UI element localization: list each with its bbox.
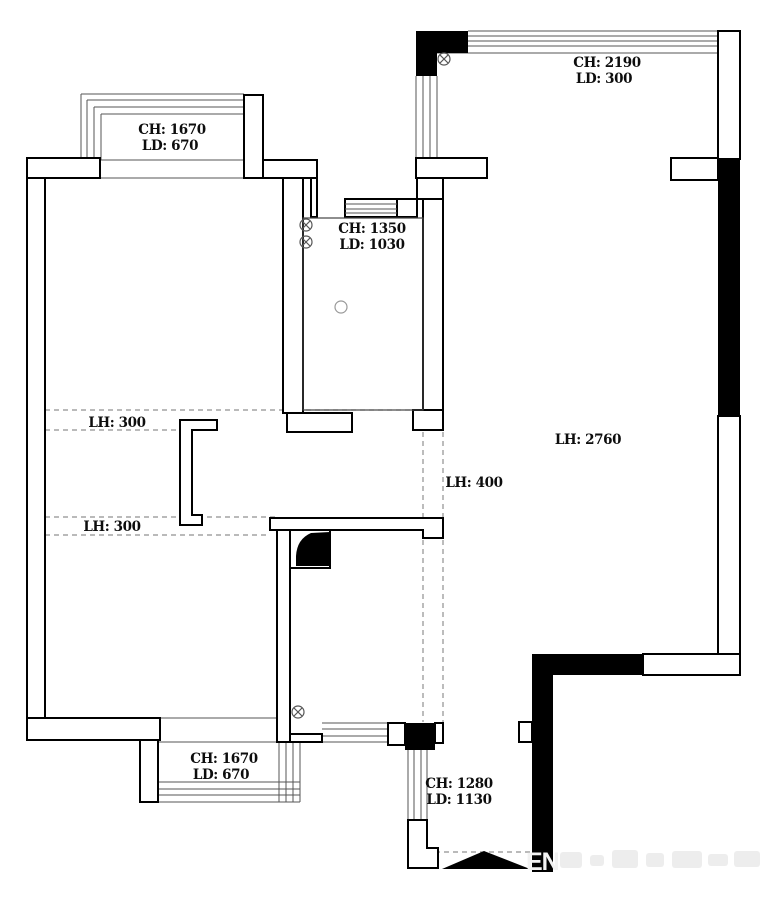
window-top-right [437,31,718,53]
label-ch: CH: 1670 [138,122,206,138]
label-bath-top: CH: 1350 LD: 1030 [338,221,406,253]
black-wall-bottom-L [532,654,643,872]
wall-entry-flank-left [388,723,405,745]
wall-balcony-bar [416,158,487,178]
watermark-blob [612,850,638,868]
watermark-blob [646,853,664,867]
label-ch: CH: 2190 [573,55,641,71]
label-ch: CH: 1350 [338,221,406,237]
wall-bedroom2-bottom [27,718,160,740]
label-living-height: LH: 2760 [555,432,621,448]
window-bottom-middle [322,723,390,742]
floor-plan-svg: CH: 1670 LD: 670 CH: 2190 LD: 300 CH: 13… [0,0,765,900]
wall-bath-right [423,199,443,410]
window-entry-side [408,750,427,820]
black-wall-entry-block [405,723,435,750]
wall-closet-bracket [180,420,217,525]
watermark-faint-blobs [560,850,760,868]
label-ld: LD: 300 [576,71,632,87]
shower-symbol [290,530,330,568]
wall-living-bottom [643,654,740,675]
label-ld: LD: 670 [193,767,249,783]
plain-circle-icon [335,301,347,313]
wall-bay-pillar [244,95,263,178]
label-ld: LD: 1130 [426,792,491,808]
wall-bedroom1-right [283,178,303,413]
label-ch: CH: 1670 [190,751,258,767]
balcony-side-window [416,76,437,158]
label-window-top-right: CH: 2190 LD: 300 [573,55,641,87]
wall-entry-flank-right [435,723,443,743]
wall-right-lower [718,416,740,675]
wall-top-left [27,158,100,178]
wall-left-exterior [27,158,45,740]
floor-plan-page: CH: 1670 LD: 670 CH: 2190 LD: 300 CH: 13… [0,0,765,900]
label-ld: LD: 670 [142,138,198,154]
label-beam-center: LH: 400 [445,475,502,491]
black-wall-right [718,159,740,416]
circle-cross-icon [438,53,450,65]
label-beam-upper: LH: 300 [88,415,145,431]
wall-bath-bottom-left [287,413,352,432]
wall-step-connector [311,178,317,217]
dimension-labels: CH: 1670 LD: 670 CH: 2190 LD: 300 CH: 13… [83,55,640,808]
watermark-blob [734,851,760,867]
label-ld: LD: 1030 [339,237,404,253]
wall-kitchen-bottom [290,734,322,742]
watermark-blob [672,851,702,868]
wall-top-mid [263,160,317,178]
wall-notch-box [519,722,532,742]
wall-entry-corner [408,820,438,868]
label-beam-lower: LH: 300 [83,519,140,535]
label-bay-top-left: CH: 1670 LD: 670 [138,122,206,154]
wall-bath-bottom-right [413,410,443,430]
door-threshold [345,199,397,217]
wall-ac-ledge [671,158,718,180]
wall-kitchen-left [277,530,290,742]
watermark-blob [590,855,604,866]
watermark-blob [560,852,582,868]
entrance-triangle-icon [442,851,530,869]
watermark-legible: EN [526,848,559,876]
wall-right-upper [718,31,740,159]
wall-hall-block [397,199,417,217]
circle-cross-icon [292,706,304,718]
label-ch: CH: 1280 [425,776,493,792]
wall-step-upper [417,178,443,199]
label-bay-bottom-left: CH: 1670 LD: 670 [190,751,258,783]
label-entry: CH: 1280 LD: 1130 [425,776,493,808]
wall-bay-cheek [140,740,158,802]
watermark-blob [708,854,728,866]
watermark: EN [526,848,760,876]
threshold-frame [345,199,397,217]
